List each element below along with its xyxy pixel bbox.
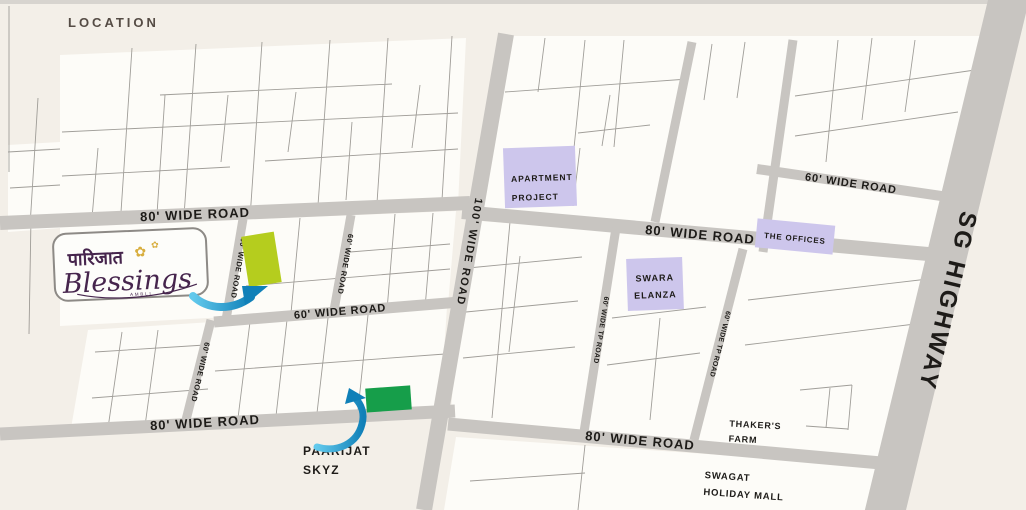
- location-map: 80' WIDE ROAD 80' WIDE ROAD 60' WIDE ROA…: [0, 0, 1026, 510]
- landmark-swara-elanza: SWARA ELANZA: [626, 257, 684, 311]
- paarijat-skyz-line2: SKYZ: [303, 463, 340, 477]
- skyz-site-plot: [365, 385, 412, 412]
- flower-icon-small: ✿: [151, 240, 159, 250]
- page-title: LOCATION: [68, 15, 159, 30]
- city-block: [60, 38, 466, 226]
- top-edge-strip: [0, 0, 1026, 4]
- project-logo-card: पारिजात ✿ ✿ Blessings AMBLI: [53, 228, 209, 302]
- apartment-project-line2: PROJECT: [512, 191, 559, 203]
- logo-subtext: AMBLI: [130, 291, 153, 297]
- swara-elanza-line1: SWARA: [635, 272, 674, 283]
- landmark-apartment-project: APARTMENT PROJECT: [503, 146, 577, 208]
- flower-icon: ✿: [134, 243, 146, 259]
- skyz-site-rect: [365, 385, 412, 412]
- swara-elanza-line2: ELANZA: [634, 289, 677, 300]
- swara-elanza-box: [626, 257, 684, 311]
- thakers-farm-line2: FARM: [728, 434, 757, 445]
- city-block: [450, 220, 936, 459]
